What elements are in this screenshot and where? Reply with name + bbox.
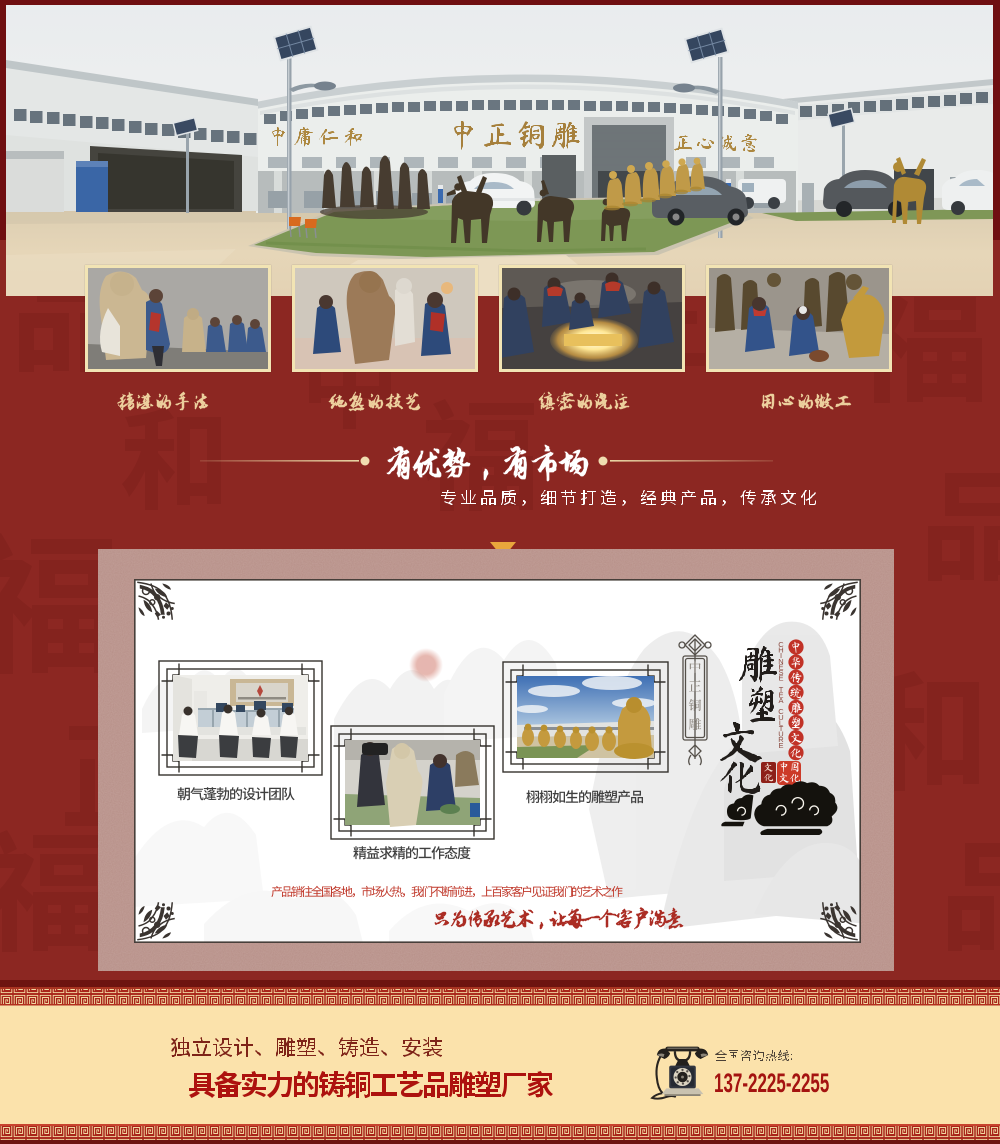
svg-text:E: E <box>778 674 783 683</box>
svg-text:A: A <box>778 696 783 705</box>
svg-text:E: E <box>778 741 783 750</box>
svg-text:137-2225-2255: 137-2225-2255 <box>714 1068 829 1098</box>
